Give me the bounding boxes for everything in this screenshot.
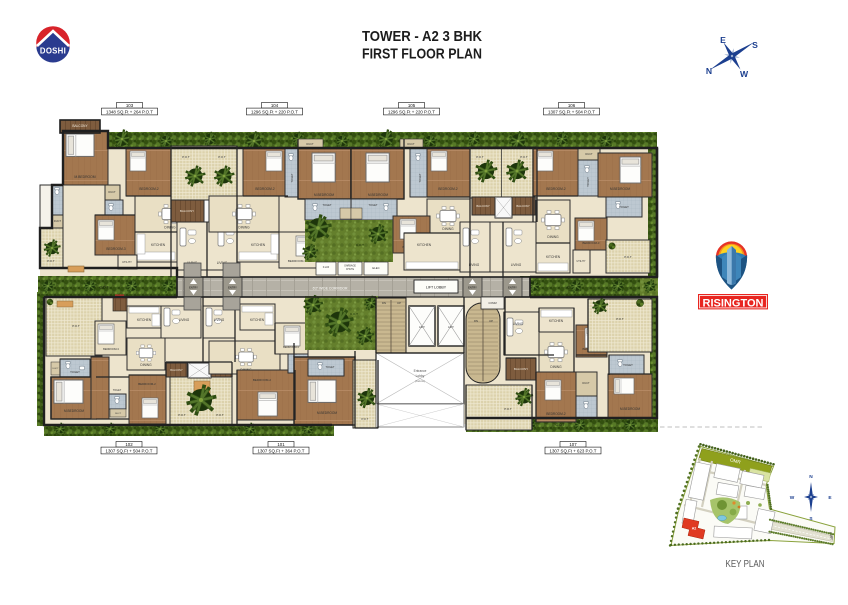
svg-text:1307 SQ.Ft + 364 P.O.T: 1307 SQ.Ft + 364 P.O.T: [258, 448, 305, 453]
svg-text:DUCT: DUCT: [582, 381, 590, 385]
svg-text:(below): (below): [415, 379, 425, 383]
svg-text:KITCHEN: KITCHEN: [137, 318, 152, 322]
svg-text:TOILET: TOILET: [368, 203, 377, 207]
svg-text:KITCHEN: KITCHEN: [546, 255, 561, 259]
svg-text:M.BEDROOM: M.BEDROOM: [368, 193, 388, 197]
svg-text:RISINGTON: RISINGTON: [703, 297, 764, 309]
svg-text:104: 104: [271, 103, 279, 108]
svg-text:E: E: [720, 35, 726, 45]
svg-text:LIVING: LIVING: [511, 263, 522, 267]
svg-text:BEDROOM-3: BEDROOM-3: [583, 241, 600, 245]
svg-text:UP: UP: [489, 319, 493, 323]
svg-text:TOILET: TOILET: [325, 365, 334, 369]
svg-text:DINING: DINING: [164, 226, 176, 230]
svg-text:BEDROOM-3: BEDROOM-3: [103, 347, 119, 351]
svg-text:LIVING: LIVING: [214, 318, 225, 322]
svg-text:BEDROOM-2: BEDROOM-2: [546, 187, 566, 191]
svg-text:BALCONY: BALCONY: [476, 204, 490, 208]
svg-text:COMM: COMM: [488, 301, 496, 305]
svg-text:BEDROOM-2: BEDROOM-2: [138, 382, 156, 386]
svg-text:KITCHEN: KITCHEN: [549, 319, 564, 323]
svg-text:TOILET: TOILET: [623, 363, 633, 367]
svg-text:DINING: DINING: [547, 235, 559, 239]
svg-text:TOILET: TOILET: [586, 177, 590, 187]
svg-text:TOILET: TOILET: [290, 173, 294, 182]
svg-text:1348 SQ.Ft + 264 P.O.T: 1348 SQ.Ft + 264 P.O.T: [106, 109, 153, 114]
svg-text:101: 101: [277, 442, 285, 447]
svg-text:BEDROOM-2: BEDROOM-2: [255, 187, 275, 191]
svg-text:FIRST FLOOR PLAN: FIRST FLOOR PLAN: [362, 46, 482, 63]
svg-text:DUCT: DUCT: [585, 152, 593, 156]
svg-text:KITCHEN: KITCHEN: [251, 243, 266, 247]
svg-text:P.O.T: P.O.T: [362, 417, 369, 421]
svg-text:LIFT: LIFT: [448, 325, 454, 329]
svg-text:TOWER - A2 3 BHK: TOWER - A2 3 BHK: [362, 28, 482, 45]
svg-text:P.O.T: P.O.T: [178, 413, 186, 417]
svg-text:TOILET: TOILET: [619, 205, 629, 209]
svg-text:BEDROOM-3: BEDROOM-3: [288, 259, 307, 263]
svg-text:BEDROOM-2: BEDROOM-2: [253, 378, 272, 382]
svg-text:P.O.T: P.O.T: [504, 407, 512, 411]
svg-text:TOILET: TOILET: [418, 173, 422, 182]
svg-text:TOILET: TOILET: [322, 203, 331, 207]
svg-text:ENTRY: ENTRY: [508, 286, 517, 290]
svg-text:BALCONY: BALCONY: [72, 124, 88, 128]
svg-text:M.BEDROOM: M.BEDROOM: [620, 407, 640, 411]
svg-text:C.O.T: C.O.T: [350, 312, 358, 316]
svg-text:LIFT: LIFT: [419, 325, 425, 329]
svg-text:N: N: [706, 66, 712, 76]
svg-text:BALCONY: BALCONY: [170, 368, 183, 372]
svg-text:LIFT LOBBY: LIFT LOBBY: [426, 286, 447, 290]
svg-text:S: S: [752, 40, 758, 50]
svg-text:BEDROOM-3: BEDROOM-3: [106, 247, 126, 251]
svg-text:A2: A2: [692, 527, 697, 531]
svg-text:DUCT: DUCT: [54, 219, 62, 223]
svg-text:KITCHEN: KITCHEN: [151, 243, 166, 247]
svg-text:DUCT: DUCT: [108, 190, 116, 194]
svg-text:DINING: DINING: [238, 226, 250, 230]
svg-text:102: 102: [125, 442, 133, 447]
svg-text:P.O.T: P.O.T: [218, 155, 226, 159]
svg-text:BEDROOM-2: BEDROOM-2: [546, 412, 566, 416]
svg-text:BALCONY: BALCONY: [180, 209, 194, 213]
svg-text:TOILET: TOILET: [113, 389, 122, 392]
svg-text:105: 105: [408, 103, 416, 108]
svg-text:P.O.T: P.O.T: [72, 324, 80, 328]
svg-text:DINING: DINING: [550, 365, 562, 369]
svg-text:KITCHEN: KITCHEN: [417, 243, 432, 247]
svg-text:ENTRY: ENTRY: [228, 286, 237, 290]
svg-text:P.O.T: P.O.T: [616, 317, 624, 321]
svg-text:UTILITY: UTILITY: [122, 260, 132, 264]
svg-text:KITCHEN: KITCHEN: [250, 318, 265, 322]
svg-text:M.BEDROOM: M.BEDROOM: [64, 409, 84, 413]
svg-text:M.BEDROOM: M.BEDROOM: [317, 411, 337, 415]
svg-text:P.O.T: P.O.T: [520, 155, 528, 159]
svg-text:1307 SQ.Ft + 623 P.O.T: 1307 SQ.Ft + 623 P.O.T: [550, 448, 597, 453]
svg-text:Lobby: Lobby: [416, 374, 425, 378]
svg-text:1296 SQ.Ft + 220 P.O.T: 1296 SQ.Ft + 220 P.O.T: [388, 109, 435, 114]
svg-text:P.O.T: P.O.T: [47, 259, 55, 263]
svg-text:LIVING: LIVING: [513, 322, 524, 326]
svg-text:C.O.T: C.O.T: [99, 286, 109, 290]
svg-text:M.BEDROOM: M.BEDROOM: [74, 175, 95, 179]
svg-text:ENTRY: ENTRY: [468, 286, 477, 290]
svg-text:107: 107: [569, 442, 577, 447]
svg-text:DINING: DINING: [140, 363, 152, 367]
svg-text:P.O.T: P.O.T: [624, 255, 632, 259]
svg-text:UTILITY: UTILITY: [577, 260, 586, 263]
svg-text:W: W: [790, 495, 795, 501]
svg-text:ELEC: ELEC: [372, 266, 379, 270]
svg-text:C.O.T: C.O.T: [356, 243, 364, 247]
svg-text:F.H.R: F.H.R: [323, 265, 330, 269]
svg-text:P.O.T: P.O.T: [182, 155, 190, 159]
svg-text:BALCONY: BALCONY: [514, 367, 528, 371]
svg-text:BEDROOM-3: BEDROOM-3: [283, 345, 299, 349]
svg-text:W: W: [740, 69, 749, 79]
svg-text:DN: DN: [382, 301, 386, 305]
svg-text:BEDROOM-2: BEDROOM-2: [438, 187, 458, 191]
svg-text:1307 SQ.Ft + 504 P.O.T: 1307 SQ.Ft + 504 P.O.T: [548, 109, 595, 114]
svg-text:DUCT: DUCT: [52, 368, 59, 370]
svg-text:1307 SQ.Ft + 504 P.O.T: 1307 SQ.Ft + 504 P.O.T: [106, 448, 153, 453]
svg-text:P.O.T: P.O.T: [476, 155, 484, 159]
svg-text:1296 SQ.Ft + 220 P.O.T: 1296 SQ.Ft + 220 P.O.T: [251, 109, 298, 114]
svg-text:DUCT: DUCT: [306, 142, 314, 146]
svg-text:BEDROOM-2: BEDROOM-2: [139, 187, 159, 191]
svg-text:C.O.T: C.O.T: [555, 423, 564, 427]
svg-text:CHUTE: CHUTE: [346, 268, 355, 271]
svg-text:DN: DN: [474, 319, 478, 323]
svg-text:BALCONY: BALCONY: [516, 204, 530, 208]
svg-text:Entrance: Entrance: [414, 369, 427, 373]
svg-text:P.O.T: P.O.T: [216, 413, 224, 417]
svg-text:M.BEDROOM: M.BEDROOM: [610, 187, 630, 191]
svg-text:N: N: [809, 474, 813, 480]
svg-text:DINING: DINING: [442, 227, 454, 231]
svg-text:LIVING: LIVING: [179, 318, 190, 322]
svg-text:DUCT: DUCT: [115, 413, 122, 415]
svg-text:KEY PLAN: KEY PLAN: [726, 559, 765, 570]
svg-text:DOSHI: DOSHI: [40, 47, 66, 56]
svg-text:M.BEDROOM: M.BEDROOM: [314, 193, 334, 197]
svg-text:C.O.T: C.O.T: [231, 428, 240, 432]
svg-text:ENTRY: ENTRY: [189, 286, 198, 290]
svg-text:DUCT: DUCT: [407, 142, 415, 146]
svg-text:103: 103: [126, 103, 134, 108]
svg-text:TOILET: TOILET: [70, 370, 80, 374]
svg-text:106: 106: [568, 103, 576, 108]
svg-text:6'2" WIDE CORRIDOR: 6'2" WIDE CORRIDOR: [313, 287, 348, 291]
svg-text:UP: UP: [397, 301, 401, 305]
